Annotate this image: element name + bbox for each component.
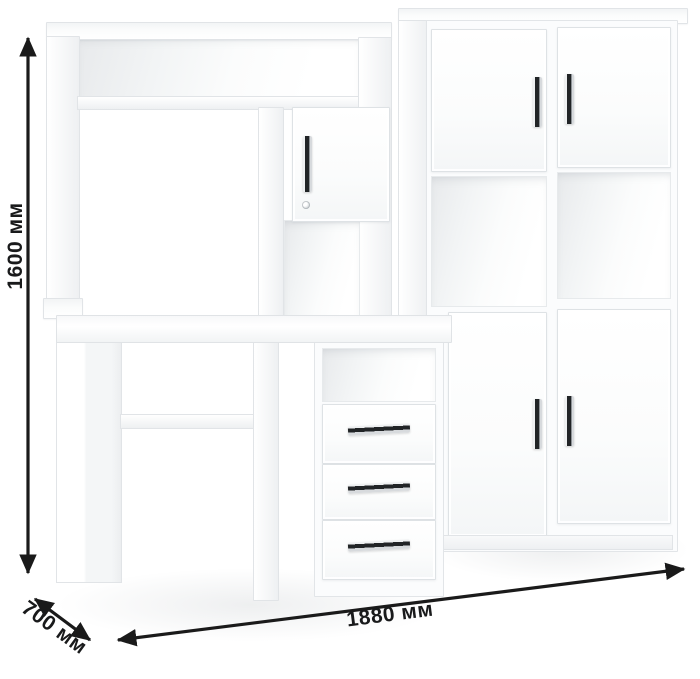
dimension-arrows <box>0 0 700 679</box>
furniture-dimension-diagram: 1600 мм 700 мм 1880 мм <box>0 0 700 679</box>
height-dimension-label: 1600 мм <box>4 196 28 296</box>
